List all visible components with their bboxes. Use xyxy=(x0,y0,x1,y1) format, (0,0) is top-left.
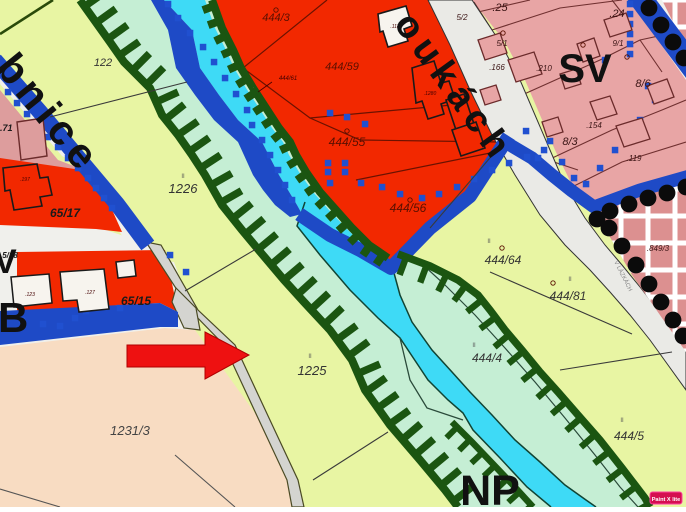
svg-text:8/6: 8/6 xyxy=(635,78,651,90)
svg-text:444/56: 444/56 xyxy=(390,201,427,215)
svg-text:444/55: 444/55 xyxy=(329,135,366,149)
svg-text:444/4: 444/4 xyxy=(472,351,502,365)
svg-text:.197: .197 xyxy=(20,177,30,183)
svg-text:NP: NP xyxy=(460,467,520,507)
svg-text:II: II xyxy=(181,174,185,180)
svg-text:65/15: 65/15 xyxy=(121,294,151,308)
svg-text:65/17: 65/17 xyxy=(50,206,81,220)
svg-text:B: B xyxy=(0,294,28,341)
svg-text:444/81: 444/81 xyxy=(550,289,587,303)
svg-text:8/3: 8/3 xyxy=(562,136,578,148)
svg-text:.154: .154 xyxy=(586,121,602,130)
svg-text:.849/3: .849/3 xyxy=(647,244,670,253)
svg-text:II: II xyxy=(487,239,491,245)
svg-text:444/64: 444/64 xyxy=(485,253,522,267)
svg-text:II: II xyxy=(620,418,624,424)
svg-text:.71: .71 xyxy=(0,123,13,133)
svg-text:1231/3: 1231/3 xyxy=(110,423,151,438)
svg-text:1226: 1226 xyxy=(169,181,199,196)
svg-text:.166: .166 xyxy=(489,63,505,72)
svg-text:II: II xyxy=(472,343,476,349)
svg-text:5/2: 5/2 xyxy=(456,13,468,22)
svg-text:II: II xyxy=(568,277,572,283)
svg-text:5/1: 5/1 xyxy=(496,39,507,48)
svg-text:444/5: 444/5 xyxy=(614,429,644,443)
svg-text:II: II xyxy=(308,354,312,360)
svg-text:.127: .127 xyxy=(85,290,95,296)
svg-text:9/1: 9/1 xyxy=(612,39,623,48)
svg-text:.210: .210 xyxy=(536,64,552,73)
svg-text:.119: .119 xyxy=(627,154,643,163)
svg-text:SV: SV xyxy=(558,47,612,91)
svg-text:1225: 1225 xyxy=(298,363,328,378)
svg-text:122: 122 xyxy=(94,57,112,69)
svg-text:Paint X lite: Paint X lite xyxy=(652,497,681,503)
svg-text:444/59: 444/59 xyxy=(325,61,359,73)
svg-text:V: V xyxy=(0,243,17,281)
svg-text:444/61: 444/61 xyxy=(279,76,297,82)
svg-text:.24: .24 xyxy=(609,8,624,20)
svg-text:444/3: 444/3 xyxy=(262,12,290,24)
svg-text:.25: .25 xyxy=(492,2,508,14)
